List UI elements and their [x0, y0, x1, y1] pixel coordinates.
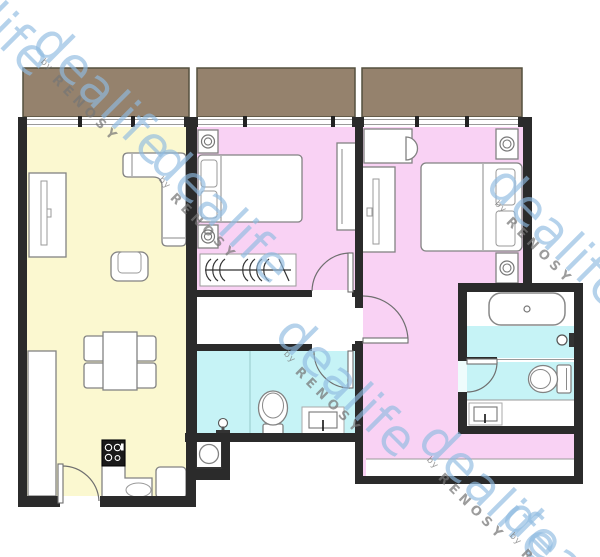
washing-machine	[196, 440, 222, 468]
balcony-middle	[197, 68, 355, 117]
dining-chair	[84, 363, 105, 388]
balconies	[23, 68, 522, 117]
pillow	[201, 191, 217, 218]
toilet-icon	[259, 391, 288, 435]
kitchen-sink-icon	[126, 483, 151, 497]
bed-double	[198, 155, 302, 222]
dining-chair	[135, 336, 156, 361]
bathtub	[489, 293, 565, 325]
tv-board	[362, 167, 395, 252]
balcony-right	[362, 68, 522, 117]
balcony-left	[23, 68, 189, 117]
bedside-table	[198, 225, 218, 248]
bedside-table	[198, 130, 218, 153]
corridor-floor	[196, 297, 355, 344]
window-living	[27, 116, 184, 127]
window-bedroom-2	[364, 116, 518, 127]
windows	[27, 116, 518, 127]
pillow	[496, 169, 515, 205]
dining-chair	[84, 336, 105, 361]
bedside-table	[496, 129, 518, 159]
dining-set	[84, 332, 156, 390]
bedside-table	[496, 253, 518, 283]
floor-plan: dealife by RENOSY dealife by RENOSY deal…	[0, 0, 600, 557]
refrigerator	[156, 467, 186, 498]
pillow	[201, 160, 217, 187]
closet	[337, 143, 356, 230]
armchair	[111, 252, 148, 281]
dining-table	[103, 332, 137, 390]
pillow	[496, 211, 515, 246]
floor-plan-drawing	[0, 0, 600, 557]
desk	[364, 129, 412, 163]
window-bedroom-1	[198, 116, 352, 127]
hanger-rack	[200, 254, 296, 286]
dining-chair	[135, 363, 156, 388]
toilet-icon	[529, 365, 572, 393]
tv-icon	[373, 179, 379, 244]
tv-icon	[41, 181, 47, 245]
stove-icon	[102, 440, 125, 466]
storage-cabinet	[28, 351, 56, 496]
lower-storage-strip	[366, 459, 574, 476]
tv-board	[29, 173, 66, 257]
washbasin	[302, 407, 344, 434]
bed-double	[421, 163, 522, 251]
